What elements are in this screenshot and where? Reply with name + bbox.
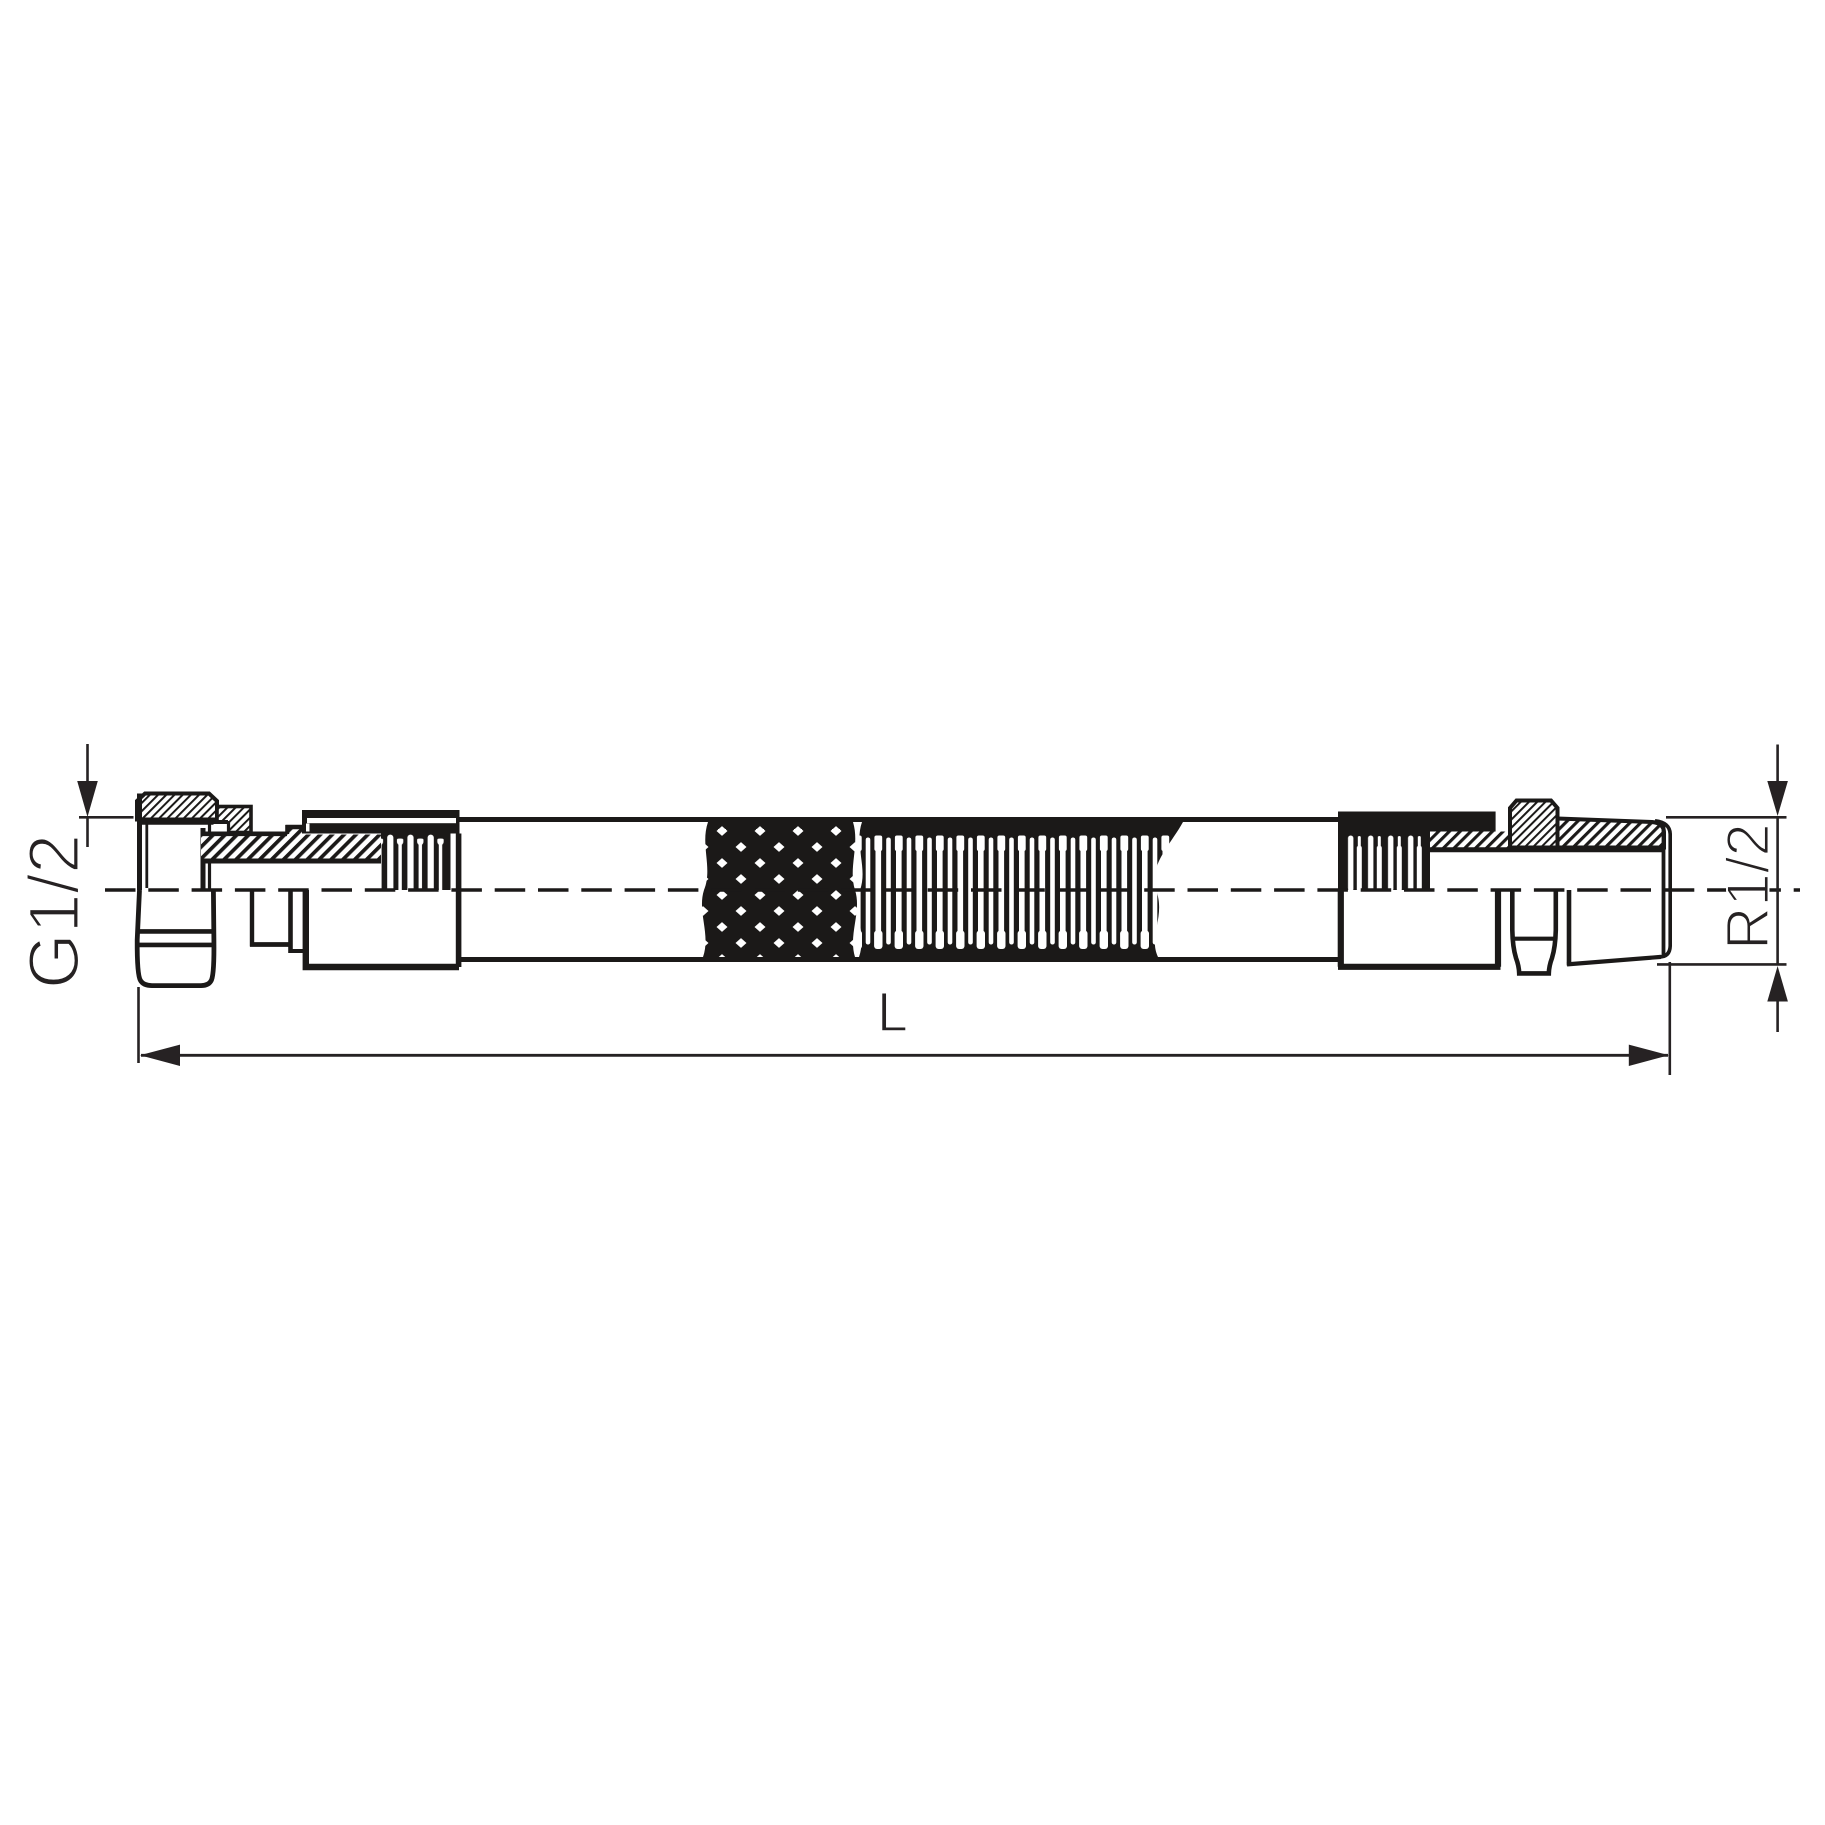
svg-text:L: L [877, 981, 908, 1043]
svg-text:G1/2: G1/2 [15, 834, 95, 989]
svg-text:R1/2: R1/2 [1715, 823, 1782, 950]
